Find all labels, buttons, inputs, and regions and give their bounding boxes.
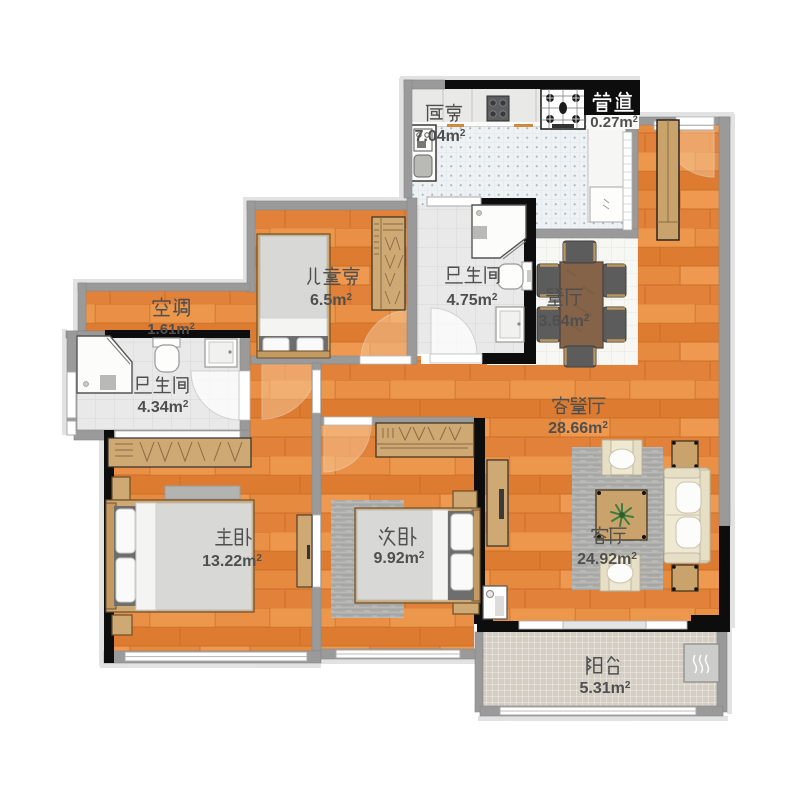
svg-text:7.04m2: 7.04m2: [415, 128, 466, 145]
svg-text:1.61m2: 1.61m2: [147, 321, 195, 338]
svg-text:5.31m2: 5.31m2: [580, 680, 631, 697]
svg-text:4.75m2: 4.75m2: [447, 292, 498, 309]
svg-text:9.92m2: 9.92m2: [374, 550, 425, 567]
svg-text:6.5m2: 6.5m2: [310, 292, 352, 309]
svg-text:4.34m2: 4.34m2: [138, 399, 189, 416]
svg-text:24.92m2: 24.92m2: [577, 551, 637, 568]
svg-text:13.22m2: 13.22m2: [202, 553, 262, 570]
svg-text:0.27m2: 0.27m2: [590, 114, 638, 131]
svg-text:3.64m2: 3.64m2: [539, 313, 590, 330]
svg-text:28.66m2: 28.66m2: [548, 420, 608, 437]
